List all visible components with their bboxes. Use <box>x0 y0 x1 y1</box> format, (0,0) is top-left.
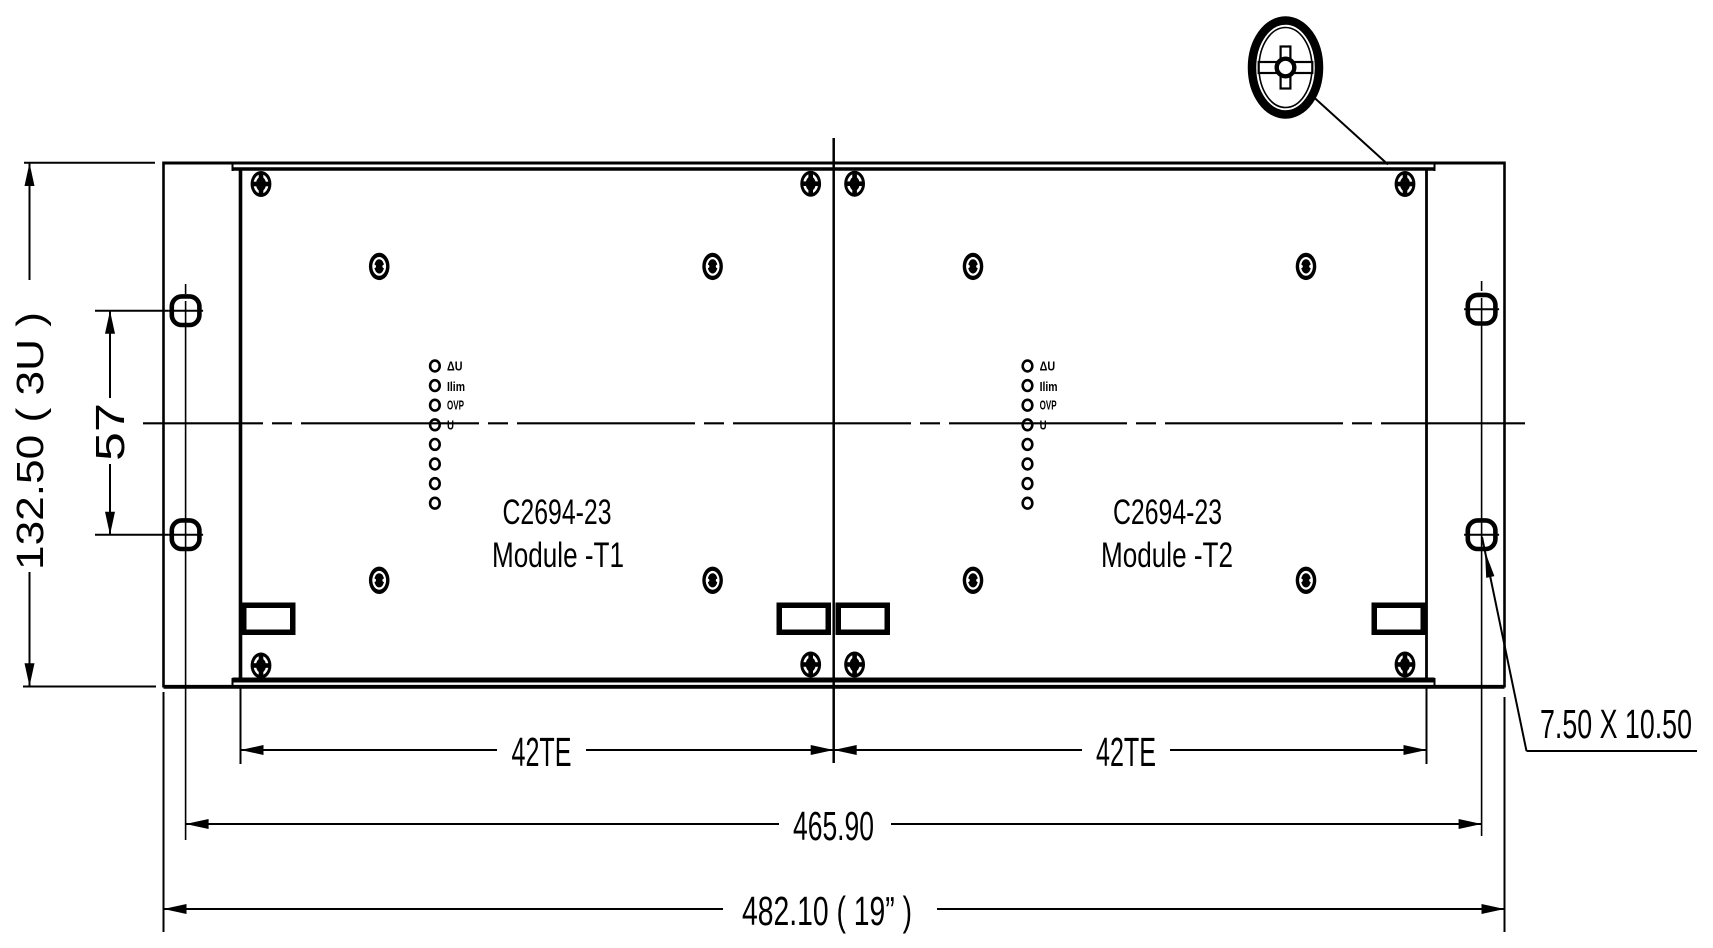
svg-text:OVP: OVP <box>1040 398 1057 413</box>
svg-text:Module -T1: Module -T1 <box>492 536 624 575</box>
svg-text:7.50 X 10.50: 7.50 X 10.50 <box>1540 701 1692 747</box>
svg-text:57: 57 <box>87 403 133 461</box>
svg-text:C2694-23: C2694-23 <box>1113 493 1222 532</box>
svg-text:Ilim: Ilim <box>447 379 465 394</box>
svg-text:Ilim: Ilim <box>1040 379 1058 394</box>
svg-text:U: U <box>1040 418 1047 433</box>
svg-text:ΔU: ΔU <box>1040 359 1056 374</box>
svg-text:ΔU: ΔU <box>447 359 463 374</box>
svg-text:465.90: 465.90 <box>793 803 874 849</box>
svg-text:132.50 ( 3U ): 132.50 ( 3U ) <box>10 312 52 570</box>
svg-text:U: U <box>447 418 454 433</box>
svg-text:OVP: OVP <box>447 398 464 413</box>
svg-text:482.10 ( 19” ): 482.10 ( 19” ) <box>742 888 912 934</box>
svg-text:C2694-23: C2694-23 <box>503 493 612 532</box>
svg-text:42TE: 42TE <box>512 729 572 775</box>
svg-text:Module -T2: Module -T2 <box>1101 536 1233 575</box>
svg-text:42TE: 42TE <box>1096 729 1156 775</box>
